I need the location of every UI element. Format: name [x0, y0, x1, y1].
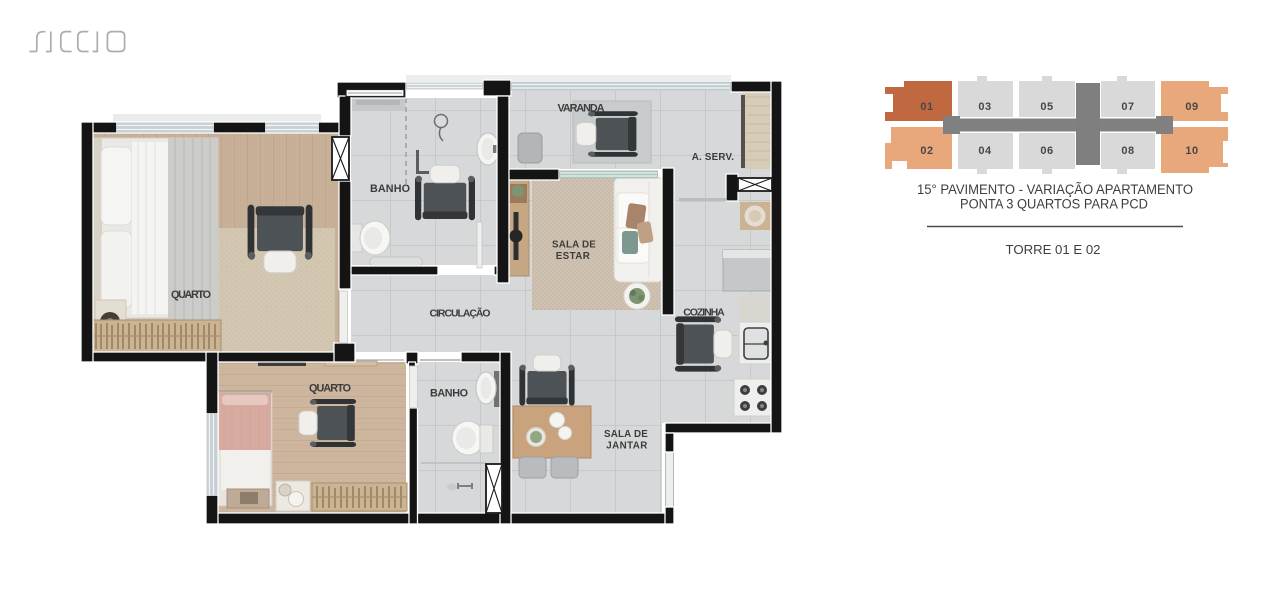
svg-text:BANHO: BANHO [430, 388, 468, 400]
svg-text:03: 03 [978, 101, 991, 113]
svg-text:04: 04 [978, 145, 992, 157]
svg-text:07: 07 [1121, 101, 1134, 113]
svg-text:VARANDA: VARANDA [558, 103, 605, 115]
svg-text:JANTAR: JANTAR [606, 441, 647, 452]
svg-text:COZINHA: COZINHA [683, 307, 725, 319]
svg-text:SALA DE: SALA DE [604, 429, 648, 440]
svg-text:TORRE 01 E 02: TORRE 01 E 02 [1006, 242, 1101, 257]
svg-text:15° PAVIMENTO - VARIAÇÃO APART: 15° PAVIMENTO - VARIAÇÃO APARTAMENTO [917, 182, 1193, 197]
svg-text:CIRCULAÇÃO: CIRCULAÇÃO [430, 307, 491, 320]
svg-text:02: 02 [920, 145, 933, 157]
svg-text:06: 06 [1040, 145, 1053, 157]
svg-text:10: 10 [1185, 145, 1198, 157]
svg-text:01: 01 [920, 101, 933, 113]
svg-text:A. SERV.: A. SERV. [692, 152, 735, 163]
svg-text:05: 05 [1040, 101, 1053, 113]
svg-text:09: 09 [1185, 101, 1198, 113]
svg-text:BANHO: BANHO [370, 183, 410, 195]
svg-text:SALA DE: SALA DE [552, 240, 596, 251]
svg-text:ESTAR: ESTAR [556, 251, 590, 262]
svg-text:QUARTO: QUARTO [309, 383, 351, 395]
svg-text:08: 08 [1121, 145, 1134, 157]
svg-text:QUARTO: QUARTO [171, 289, 211, 301]
svg-text:PONTA 3 QUARTOS PARA PCD: PONTA 3 QUARTOS PARA PCD [960, 197, 1148, 212]
